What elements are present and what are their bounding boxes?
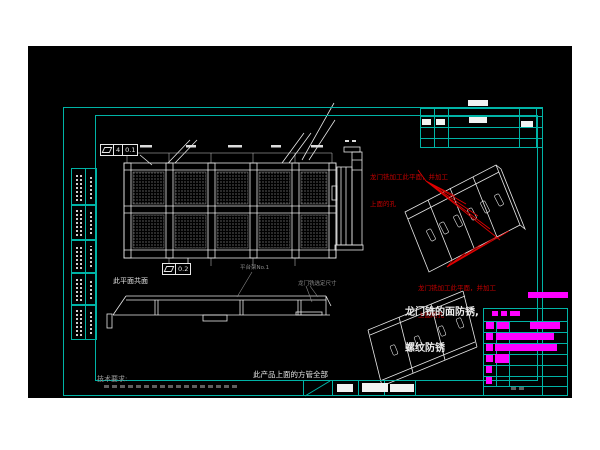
- red-annotation-line: 龙门铣加工此平面，并加工: [370, 173, 448, 182]
- title-block-highlight: [497, 322, 509, 329]
- revision-table-entry: [436, 119, 445, 125]
- title-block-footer-mark: [511, 387, 527, 390]
- title-block-highlight: [486, 377, 492, 384]
- binding-strip-cell: [71, 168, 97, 205]
- revision-table-entry: [422, 119, 431, 125]
- gdt-value: 0.1: [122, 145, 137, 155]
- square-tube-note: 此产品上面的方管全部 为150*150*10.0方管: [253, 347, 328, 398]
- antirust-note-line: 螺纹防锈: [405, 343, 479, 355]
- revision-table-entry: [521, 121, 533, 127]
- tech-requirements-body-marks: [104, 385, 239, 388]
- bottom-strip-entry: [337, 384, 353, 392]
- title-block-highlight: [486, 355, 493, 362]
- title-block-highlight: [496, 333, 554, 340]
- red-annotation-line: 上面的孔: [370, 200, 448, 209]
- red-annotation-upper: 龙门铣加工此平面，并加工 上面的孔: [370, 155, 448, 227]
- bottom-strip-divider: [415, 381, 416, 396]
- title-block-highlight: [486, 366, 492, 373]
- title-block-highlight: [528, 292, 568, 298]
- cad-viewport: 4 0.1 0.2 此平面共面 平台架No.1 龙门铣选定尺寸 龙门铣加工此平面…: [28, 46, 572, 398]
- flatness-symbol-icon: [164, 266, 175, 272]
- title-block-header-mark: [510, 311, 520, 316]
- binding-strip-cell: [71, 240, 97, 273]
- title-block-highlight: [530, 322, 560, 329]
- bottom-strip-entry: [390, 384, 414, 392]
- coplanar-note: 此平面共面: [113, 276, 148, 286]
- tech-requirements-title: 技术要求:: [97, 374, 127, 384]
- gdt-callout-upper: 4 0.1: [100, 144, 138, 156]
- sheet-label-block: [468, 100, 488, 106]
- screenshot: 4 0.1 0.2 此平面共面 平台架No.1 龙门铣选定尺寸 龙门铣加工此平面…: [0, 0, 600, 450]
- binding-strip-cell: [71, 305, 97, 340]
- flatness-symbol-icon: [102, 147, 113, 153]
- bottom-strip-entry: [362, 383, 388, 392]
- square-tube-note-line: 此产品上面的方管全部: [253, 369, 328, 380]
- gdt-value: 0.2: [175, 264, 190, 274]
- bottom-strip-divider: [358, 381, 359, 396]
- antirust-note: 龙门铣的面防锈, 螺纹防锈: [405, 283, 479, 379]
- antirust-note-line: 龙门铣的面防锈,: [405, 307, 479, 319]
- title-block-highlight: [495, 344, 557, 351]
- revision-table-entry: [469, 117, 487, 123]
- bottom-strip-divider: [332, 381, 333, 396]
- title-block-header-mark: [501, 311, 507, 316]
- title-block-highlight: [495, 354, 509, 363]
- gdt-value: 4: [113, 145, 122, 155]
- gantry-dim-label: 龙门铣选定尺寸: [298, 279, 337, 287]
- revision-table: [420, 108, 543, 148]
- title-block-highlight: [486, 344, 493, 351]
- binding-strip-cell: [71, 273, 97, 305]
- binding-strip-cell: [71, 205, 97, 240]
- platform-label: 平台架No.1: [240, 263, 269, 271]
- gdt-callout-lower: 0.2: [162, 263, 191, 275]
